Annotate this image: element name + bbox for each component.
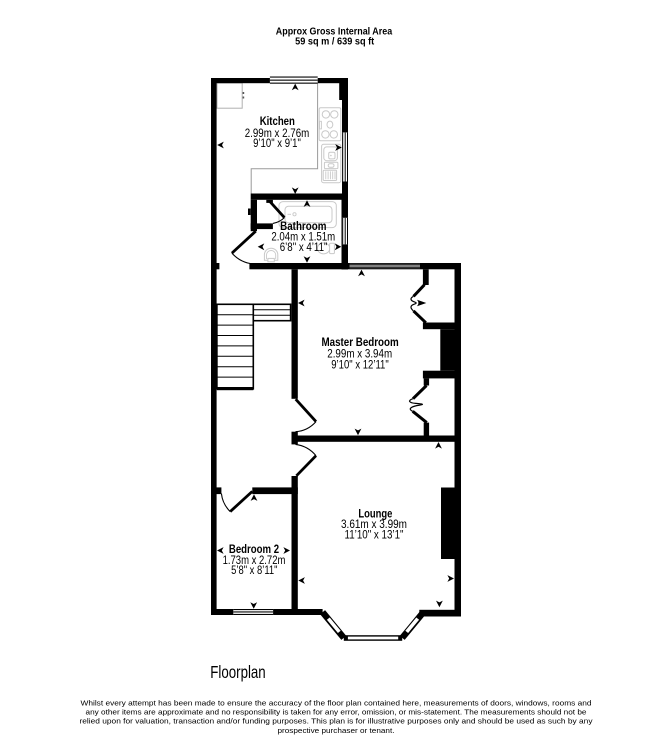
svg-text:Whilst every attempt has been: Whilst every attempt has been made to en…	[81, 698, 592, 707]
svg-text:Kitchen: Kitchen	[260, 116, 295, 128]
svg-text:6’8" x 4’11": 6’8" x 4’11"	[280, 242, 328, 254]
svg-text:prospective purchaser or tenan: prospective purchaser or tenant.	[278, 726, 395, 735]
svg-text:any other items are approximat: any other items are approximate and no r…	[86, 708, 587, 717]
svg-text:Master Bedroom: Master Bedroom	[322, 337, 399, 349]
svg-text:relied upon for valuation, tra: relied upon for valuation, transaction a…	[80, 717, 593, 726]
svg-text:11’10" x 13’1": 11’10" x 13’1"	[345, 529, 404, 541]
svg-text:9’10" x 12’11": 9’10" x 12’11"	[331, 359, 389, 371]
svg-text:59 sq m / 639 sq ft: 59 sq m / 639 sq ft	[295, 37, 375, 48]
svg-text:9’10" x 9’1": 9’10" x 9’1"	[253, 138, 301, 150]
svg-text:Floorplan: Floorplan	[210, 662, 265, 682]
svg-text:5’8" x 8’11": 5’8" x 8’11"	[231, 565, 277, 577]
